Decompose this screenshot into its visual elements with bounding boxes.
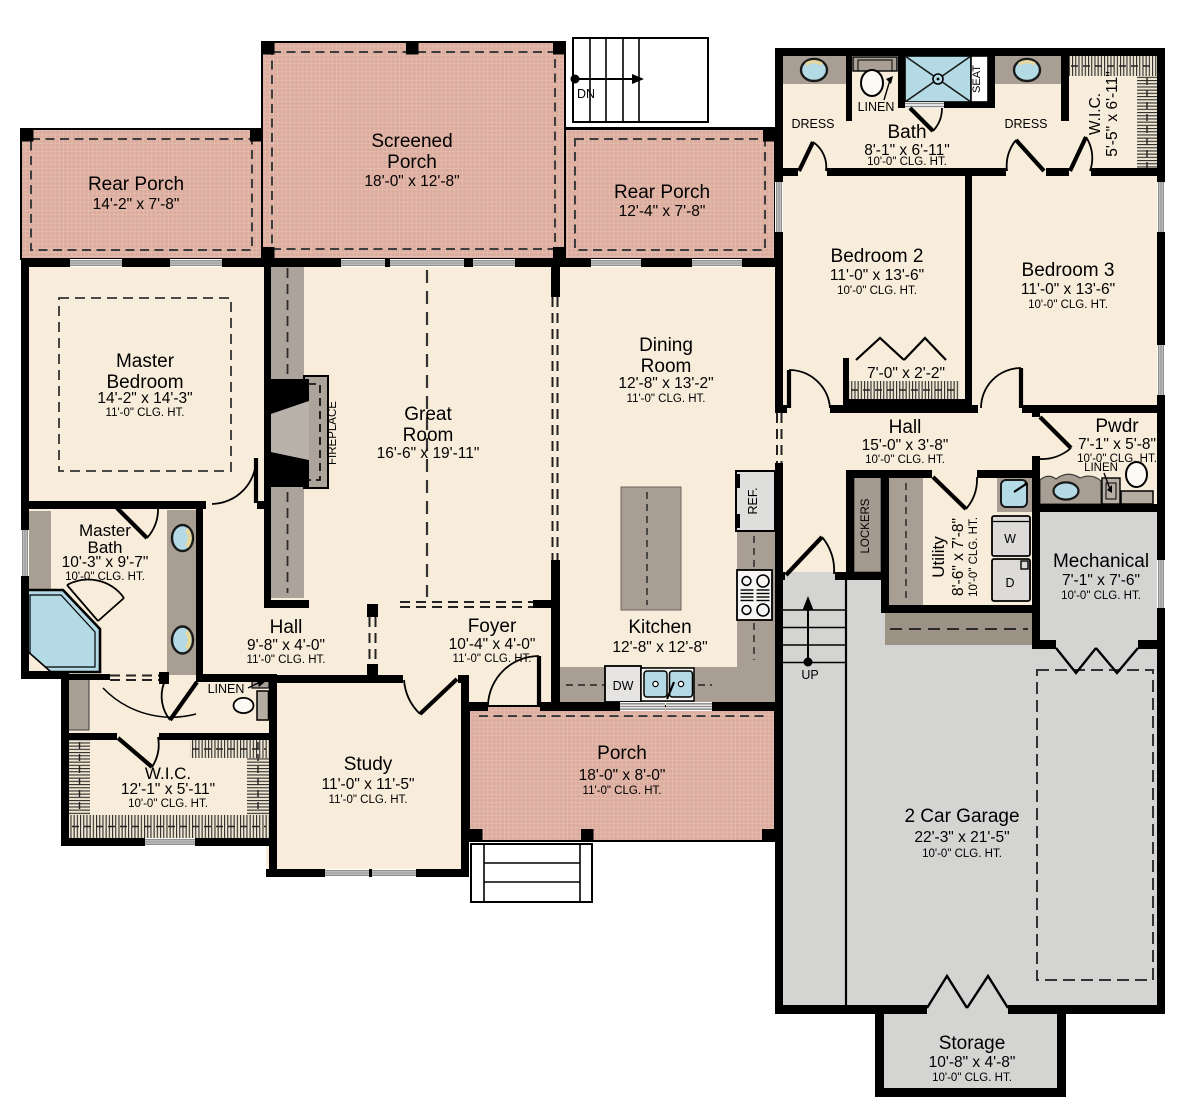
svg-text:8'-6" x 7'-8": 8'-6" x 7'-8" — [950, 518, 967, 596]
svg-text:11'-0" CLG. HT.: 11'-0" CLG. HT. — [329, 794, 408, 806]
svg-text:W: W — [1004, 532, 1016, 546]
svg-text:10'-3" x 9'-7": 10'-3" x 9'-7" — [62, 554, 149, 571]
svg-text:22'-3" x 21'-5": 22'-3" x 21'-5" — [914, 829, 1009, 846]
svg-text:LINEN: LINEN — [208, 682, 245, 696]
svg-text:10'-0" CLG. HT.: 10'-0" CLG. HT. — [65, 571, 145, 583]
svg-text:11'-0" CLG. HT.: 11'-0" CLG. HT. — [627, 393, 706, 405]
svg-text:7'-0" x 2'-2": 7'-0" x 2'-2" — [867, 365, 945, 382]
svg-text:16'-6" x 19'-11": 16'-6" x 19'-11" — [377, 445, 480, 462]
svg-text:Bedroom 3: Bedroom 3 — [1022, 260, 1115, 281]
svg-text:11'-0" x 13'-6": 11'-0" x 13'-6" — [1021, 281, 1115, 298]
svg-text:11'-0" CLG. HT.: 11'-0" CLG. HT. — [453, 653, 532, 665]
svg-text:DW: DW — [613, 679, 634, 693]
svg-text:Kitchen: Kitchen — [628, 617, 691, 638]
svg-text:15'-0" x 3'-8": 15'-0" x 3'-8" — [862, 437, 949, 454]
svg-text:D: D — [1005, 576, 1014, 590]
svg-text:10'-0" CLG. HT.: 10'-0" CLG. HT. — [968, 517, 980, 597]
svg-text:10'-0" CLG. HT.: 10'-0" CLG. HT. — [837, 285, 917, 297]
svg-text:Utility: Utility — [929, 536, 948, 578]
svg-text:10'-8" x 4'-8": 10'-8" x 4'-8" — [929, 1054, 1016, 1071]
svg-text:Pwdr: Pwdr — [1095, 416, 1139, 437]
svg-text:Study: Study — [344, 754, 393, 775]
svg-text:Porch: Porch — [387, 152, 437, 173]
svg-text:14'-2" x 7'-8": 14'-2" x 7'-8" — [93, 196, 180, 213]
svg-text:18'-0" x 12'-8": 18'-0" x 12'-8" — [364, 173, 459, 190]
svg-text:10'-0" CLG. HT.: 10'-0" CLG. HT. — [128, 798, 208, 810]
svg-text:DRESS: DRESS — [1004, 117, 1047, 131]
svg-text:11'-0" x 11'-5": 11'-0" x 11'-5" — [321, 776, 414, 793]
svg-text:REF.: REF. — [746, 487, 760, 514]
svg-text:10'-0" CLG. HT.: 10'-0" CLG. HT. — [1061, 590, 1141, 602]
svg-text:10'-0" CLG. HT.: 10'-0" CLG. HT. — [932, 1072, 1012, 1084]
svg-text:LINEN: LINEN — [858, 100, 895, 114]
svg-text:FIREPLACE: FIREPLACE — [327, 401, 339, 465]
svg-text:10'-0" CLG. HT.: 10'-0" CLG. HT. — [922, 848, 1002, 860]
svg-text:10'-0" CLG. HT.: 10'-0" CLG. HT. — [1077, 453, 1157, 465]
svg-text:12'-1" x 5'-11": 12'-1" x 5'-11" — [121, 781, 215, 798]
svg-text:10'-0" CLG. HT.: 10'-0" CLG. HT. — [1028, 299, 1108, 311]
svg-text:11'-0" x 13'-6": 11'-0" x 13'-6" — [830, 267, 924, 284]
svg-text:7'-1" x 7'-6": 7'-1" x 7'-6" — [1062, 572, 1140, 589]
svg-text:12'-8" x 12'-8": 12'-8" x 12'-8" — [612, 639, 707, 656]
svg-text:Screened: Screened — [371, 131, 452, 152]
svg-text:14'-2" x 14'-3": 14'-2" x 14'-3" — [97, 390, 192, 407]
svg-text:Hall: Hall — [889, 417, 922, 438]
svg-text:2 Car Garage: 2 Car Garage — [904, 806, 1019, 827]
svg-text:Great: Great — [404, 404, 452, 425]
svg-text:Foyer: Foyer — [468, 616, 517, 637]
svg-text:11'-0" CLG. HT.: 11'-0" CLG. HT. — [247, 654, 326, 666]
svg-text:Bath: Bath — [887, 122, 926, 143]
svg-text:12'-4" x 7'-8": 12'-4" x 7'-8" — [619, 203, 706, 220]
svg-text:DN: DN — [577, 87, 595, 101]
svg-text:Master: Master — [116, 351, 175, 372]
svg-text:11'-0" CLG. HT.: 11'-0" CLG. HT. — [106, 407, 185, 419]
svg-text:Bedroom 2: Bedroom 2 — [831, 246, 924, 267]
svg-text:Room: Room — [403, 425, 454, 446]
svg-text:12'-8" x 13'-2": 12'-8" x 13'-2" — [618, 375, 713, 392]
svg-text:9'-8" x 4'-0": 9'-8" x 4'-0" — [247, 637, 325, 654]
svg-text:Porch: Porch — [597, 743, 647, 764]
svg-text:Hall: Hall — [270, 617, 303, 638]
svg-text:DRESS: DRESS — [791, 117, 834, 131]
svg-text:Room: Room — [641, 356, 692, 377]
svg-text:10'-0" CLG. HT.: 10'-0" CLG. HT. — [865, 454, 945, 466]
svg-text:Rear Porch: Rear Porch — [88, 174, 184, 195]
svg-text:Rear Porch: Rear Porch — [614, 182, 710, 203]
svg-text:Dining: Dining — [639, 335, 693, 356]
svg-text:W.I.C.: W.I.C. — [1087, 93, 1104, 135]
svg-text:SEAT: SEAT — [971, 65, 983, 93]
svg-text:LOCKERS: LOCKERS — [860, 498, 872, 553]
svg-text:11'-0" CLG. HT.: 11'-0" CLG. HT. — [583, 785, 662, 797]
svg-text:Mechanical: Mechanical — [1053, 551, 1149, 572]
svg-text:Storage: Storage — [939, 1033, 1006, 1054]
svg-text:5'-5" x 6'-11": 5'-5" x 6'-11" — [1104, 71, 1121, 157]
svg-text:18'-0" x 8'-0": 18'-0" x 8'-0" — [579, 767, 666, 784]
svg-text:7'-1" x 5'-8": 7'-1" x 5'-8" — [1078, 436, 1156, 453]
svg-text:10'-4" x 4'-0": 10'-4" x 4'-0" — [449, 636, 536, 653]
svg-text:UP: UP — [801, 668, 818, 682]
svg-text:10'-0" CLG. HT.: 10'-0" CLG. HT. — [867, 156, 947, 168]
